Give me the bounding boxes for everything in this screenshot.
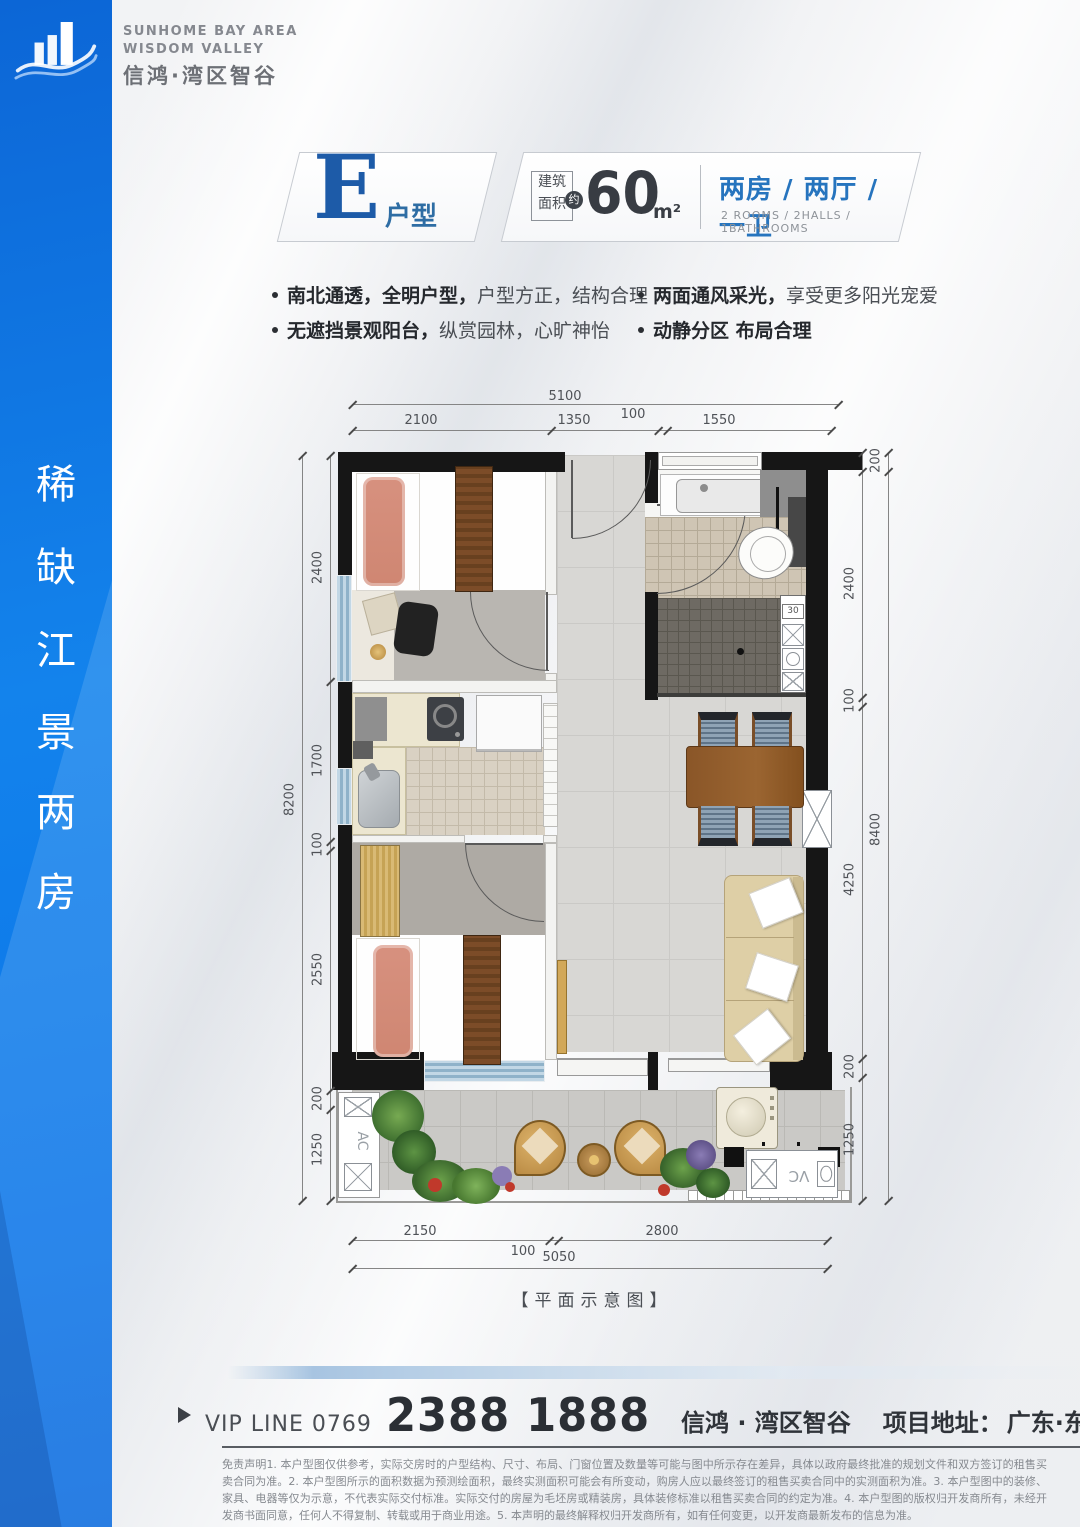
dining-chair	[698, 806, 738, 846]
dim-label: 1550	[689, 413, 749, 428]
brand-name-en-line2: WISDOM VALLEY	[123, 42, 264, 57]
wall-right-upper	[806, 470, 828, 790]
dining-table	[686, 746, 804, 808]
unit-type-box: E 户型	[277, 152, 497, 242]
wall-left-mid	[338, 682, 352, 768]
sunhome-logo-icon	[14, 12, 98, 88]
project-address: 广东·东莞·沙田镇西太隆	[1007, 1403, 1080, 1438]
kitchen-bedroom2-partition-stub	[543, 835, 557, 843]
dim-label: 200	[869, 431, 884, 491]
brand-name-cn: 信鸿·湾区智谷	[123, 60, 278, 90]
title-divider	[700, 165, 701, 229]
pipe-icon	[817, 1161, 835, 1187]
wall-top-right-bar	[762, 452, 862, 470]
bullet-icon	[272, 327, 278, 333]
fridge	[476, 695, 542, 752]
dim-label: 1250	[311, 1120, 326, 1180]
bedroom2-door-leaf	[465, 843, 543, 845]
vc-label: VC	[781, 1163, 817, 1185]
kitchen-bedroom1-partition	[352, 680, 557, 693]
dim-line	[352, 1240, 827, 1241]
dim-label: 200	[843, 1037, 858, 1097]
bedroom1-desk-chair	[393, 600, 440, 657]
burner-round-icon	[782, 648, 804, 670]
washer-button	[770, 1096, 774, 1100]
tv-console	[557, 960, 567, 1054]
dim-line	[352, 430, 831, 431]
ac-label: AC	[350, 1124, 370, 1158]
dim-label: 100	[311, 815, 326, 875]
duct-icon	[751, 1159, 777, 1189]
dim-line	[862, 452, 863, 1200]
balcony-sliding-door	[557, 1058, 648, 1076]
vertical-slogan-char: 景	[0, 700, 112, 758]
red-flower	[658, 1184, 670, 1196]
feature-item: 南北通透，全明户型，户型方正，结构合理	[272, 281, 648, 308]
wall-right-lower	[806, 848, 828, 1055]
sink-faucet	[700, 484, 708, 492]
bathroom-window	[658, 452, 762, 470]
bedroom1-partition-upper	[545, 452, 557, 595]
feature-item: 无遮挡景观阳台，纵赏园林，心旷神怡	[272, 316, 610, 343]
vertical-slogan-char: 房	[0, 860, 112, 918]
dim-label: 1350	[544, 413, 604, 428]
brand-name-en-line1: SUNHOME BAY AREA	[123, 24, 298, 39]
kitchen-window	[336, 768, 352, 825]
dining-chair	[752, 806, 792, 846]
vertical-slogan-char: 稀	[0, 452, 112, 510]
table-center	[589, 1155, 599, 1165]
disclaimer-text: 免责声明1. 本户型图仅供参考，实际交房时的户型结构、尺寸、布局、门窗位置及数量…	[222, 1456, 1047, 1524]
rattan-chair	[514, 1120, 566, 1176]
unit-info-box: 建筑 面积 约 60 m² 两房 / 两厅 / 一卫 2 ROOMS / 2HA…	[501, 152, 921, 242]
bullet-icon	[638, 292, 644, 298]
washing-machine	[716, 1087, 778, 1149]
bedroom1-stool	[370, 644, 386, 660]
kitchen-sink	[358, 770, 400, 828]
bullet-icon	[638, 327, 644, 333]
vip-line-label: VIP LINE 0769	[205, 1412, 372, 1437]
stove-burner-ring	[433, 704, 457, 728]
approx-badge: 约	[565, 191, 583, 209]
vip-line-row: VIP LINE 0769 2388 1888 信鸿 · 湾区智谷 项目地址： …	[178, 1388, 1080, 1442]
wall-left-upper	[338, 452, 352, 575]
rooms-en: 2 ROOMS / 2HALLS / 1BATHROOMS	[721, 209, 909, 235]
kitchen-floor	[406, 747, 545, 835]
stove-knob	[455, 732, 460, 737]
rattan-chair	[614, 1120, 666, 1176]
wall-left-lower	[338, 825, 352, 1090]
bathroom-wall-lower	[645, 592, 658, 700]
wall-balconydoor-stub	[648, 1052, 658, 1090]
wall-top-bedroom1	[338, 452, 565, 472]
dim-top-total: 5100	[535, 389, 595, 404]
column-block	[724, 1147, 744, 1167]
dim-label: 5050	[529, 1250, 589, 1265]
plant	[696, 1168, 730, 1198]
dim-label: 2800	[632, 1224, 692, 1239]
dim-label: 100	[843, 671, 858, 731]
bedroom1-door-leaf	[546, 592, 548, 670]
bedroom2-runner	[463, 935, 501, 1065]
feature-item: 动静分区 布局合理	[638, 316, 812, 343]
chair-cushion	[624, 1128, 661, 1165]
red-flower	[505, 1182, 515, 1192]
footer-divider	[222, 1446, 1080, 1448]
shower-floor	[645, 598, 780, 693]
dim-line	[888, 452, 889, 1200]
unit-letter: E	[313, 143, 380, 231]
footer-accent-bar	[228, 1366, 1080, 1379]
vertical-slogan-char: 缺	[0, 535, 112, 593]
dim-label: 8200	[283, 770, 298, 830]
vertical-slogan-char: 两	[0, 780, 112, 838]
sofa-seam	[726, 937, 794, 938]
chair-cushion	[522, 1128, 559, 1165]
dim-line	[352, 404, 838, 405]
washer-button	[770, 1116, 774, 1120]
area-value: 60	[585, 159, 660, 227]
purple-flower	[686, 1140, 716, 1170]
kitchen-glass-door	[543, 703, 558, 827]
vc-duct-box: VC	[746, 1150, 838, 1198]
dim-label: 2400	[843, 554, 858, 614]
bedroom2-wardrobe	[360, 845, 400, 937]
dim-label: 1250	[843, 1110, 858, 1170]
dim-label: 8400	[869, 800, 884, 860]
dim-label: 2550	[311, 940, 326, 1000]
door-knob-dot	[737, 648, 744, 655]
kitchen-cabinet	[355, 697, 387, 741]
address-label: 项目地址：	[883, 1403, 1003, 1438]
burner-icon	[782, 672, 804, 691]
dim-label: 1700	[311, 731, 326, 791]
counter-label-box: 30	[782, 604, 804, 619]
vip-phone-number: 2388 1888	[386, 1388, 650, 1442]
washer-drum	[726, 1097, 766, 1137]
bedroom2-partition	[545, 843, 557, 1060]
feature-item: 两面通风采光，享受更多阳光宠爱	[638, 281, 938, 308]
right-wall-window-column	[802, 790, 832, 848]
entry-door-leaf	[571, 460, 573, 538]
dim-line	[302, 455, 303, 1200]
unit-type-label: 户型	[385, 196, 437, 233]
dim-line	[352, 1268, 827, 1269]
washer-button	[770, 1106, 774, 1110]
balcony-table	[577, 1143, 611, 1177]
plan-caption: 【平面示意图】	[352, 1286, 832, 1311]
kitchen-cabinet-small	[353, 741, 373, 759]
footer-brand: 信鸿 · 湾区智谷	[681, 1403, 851, 1438]
poster-page: 稀 缺 江 景 两 房 SUNHOME BAY AREA WISDOM VALL…	[0, 0, 1080, 1527]
bullet-icon	[272, 292, 278, 298]
left-blue-band: 稀 缺 江 景 两 房	[0, 0, 112, 1527]
bedroom1-wardrobe	[455, 466, 493, 592]
dim-label: 2150	[390, 1224, 450, 1239]
ac-vent-icon	[344, 1163, 372, 1191]
area-unit: m²	[653, 201, 681, 223]
bedroom2-mattress	[373, 945, 413, 1057]
dim-label: 4250	[843, 850, 858, 910]
kitchen-bedroom2-partition-left	[352, 835, 465, 843]
dim-label: 2400	[311, 538, 326, 598]
bedroom1-mattress	[363, 477, 405, 586]
bath-living-divider	[657, 693, 806, 697]
dim-label: 2100	[391, 413, 451, 428]
vertical-slogan-char: 江	[0, 618, 112, 676]
triangle-icon	[178, 1407, 191, 1423]
balcony-edge-bottom	[336, 1201, 852, 1203]
bedroom1-window	[336, 575, 352, 682]
ac-vent-icon	[344, 1097, 372, 1117]
red-flower	[428, 1178, 442, 1192]
burner-icon	[782, 624, 804, 646]
bathroom-sink	[676, 479, 766, 513]
dim-label: 100	[603, 407, 663, 422]
